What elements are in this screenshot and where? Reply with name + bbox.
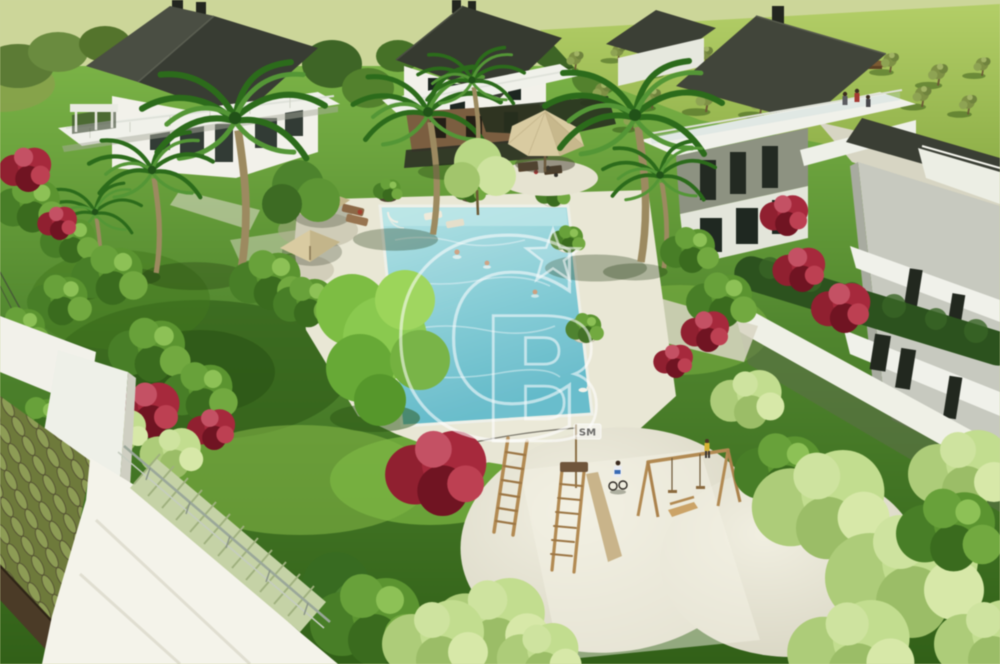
scene-render: C B SM: [0, 0, 1000, 664]
watermark-sm-text: SM: [579, 428, 596, 439]
render-photo: C B SM: [0, 0, 1000, 664]
watermark-letter-b: B: [477, 281, 608, 482]
watermark-cb-logo: C B SM: [387, 186, 608, 502]
